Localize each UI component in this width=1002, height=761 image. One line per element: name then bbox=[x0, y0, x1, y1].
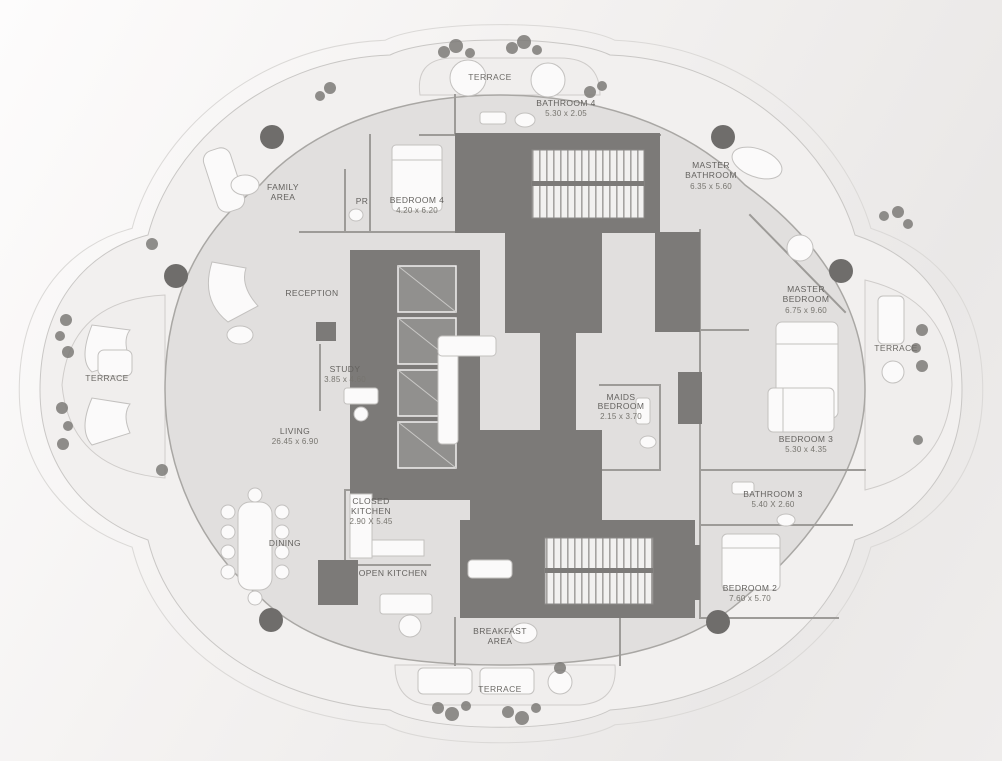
label-living: LIVING bbox=[280, 426, 310, 436]
label-master-bathroom-2: BATHROOM bbox=[685, 170, 737, 180]
label-family-area-2: AREA bbox=[271, 192, 296, 202]
label-terrace-right: TERRACE bbox=[874, 343, 917, 353]
dim-bedroom-3: 5.30 x 4.35 bbox=[785, 445, 827, 454]
label-dining: DINING bbox=[269, 538, 301, 548]
dim-master-bathroom: 6.35 x 5.60 bbox=[690, 182, 732, 191]
label-bathroom-4: BATHROOM 4 bbox=[536, 98, 596, 108]
dim-living: 26.45 x 6.90 bbox=[272, 437, 319, 446]
label-bedroom-2: BEDROOM 2 bbox=[723, 583, 778, 593]
dim-study: 3.85 x 4.60 bbox=[324, 375, 366, 384]
label-breakfast-area-2: AREA bbox=[488, 636, 513, 646]
label-master-bedroom-2: BEDROOM bbox=[783, 294, 830, 304]
dim-bathroom-4: 5.30 x 2.05 bbox=[545, 109, 587, 118]
floorplan-canvas: TERRACE BATHROOM 4 5.30 x 2.05 FAMILY AR… bbox=[0, 0, 1002, 761]
dim-bathroom-3: 5.40 X 2.60 bbox=[751, 500, 794, 509]
dim-bedroom-2: 7.60 x 5.70 bbox=[729, 594, 771, 603]
label-maids-bedroom-2: BEDROOM bbox=[598, 401, 645, 411]
label-open-kitchen: OPEN KITCHEN bbox=[359, 568, 428, 578]
label-master-bathroom-1: MASTER bbox=[692, 160, 730, 170]
label-terrace-left: TERRACE bbox=[85, 373, 128, 383]
label-closed-kitchen-2: KITCHEN bbox=[351, 506, 391, 516]
label-pr: PR bbox=[356, 196, 369, 206]
label-master-bedroom-1: MASTER bbox=[787, 284, 825, 294]
dim-closed-kitchen: 2.90 X 5.45 bbox=[349, 517, 392, 526]
label-reception: RECEPTION bbox=[285, 288, 338, 298]
label-breakfast-area-1: BREAKFAST bbox=[473, 626, 527, 636]
label-terrace-top: TERRACE bbox=[468, 72, 511, 82]
label-bathroom-3: BATHROOM 3 bbox=[743, 489, 803, 499]
label-family-area-1: FAMILY bbox=[267, 182, 299, 192]
label-bedroom-3: BEDROOM 3 bbox=[779, 434, 834, 444]
dim-bedroom-4: 4.20 x 6.20 bbox=[396, 206, 438, 215]
dim-master-bedroom: 6.75 x 9.60 bbox=[785, 306, 827, 315]
label-bedroom-4: BEDROOM 4 bbox=[390, 195, 445, 205]
label-study: STUDY bbox=[330, 364, 361, 374]
floorplan-svg: TERRACE BATHROOM 4 5.30 x 2.05 FAMILY AR… bbox=[0, 0, 1002, 761]
label-closed-kitchen-1: CLOSED bbox=[352, 496, 389, 506]
dim-maids-bedroom: 2.15 x 3.70 bbox=[600, 412, 642, 421]
label-terrace-bottom: TERRACE bbox=[478, 684, 521, 694]
